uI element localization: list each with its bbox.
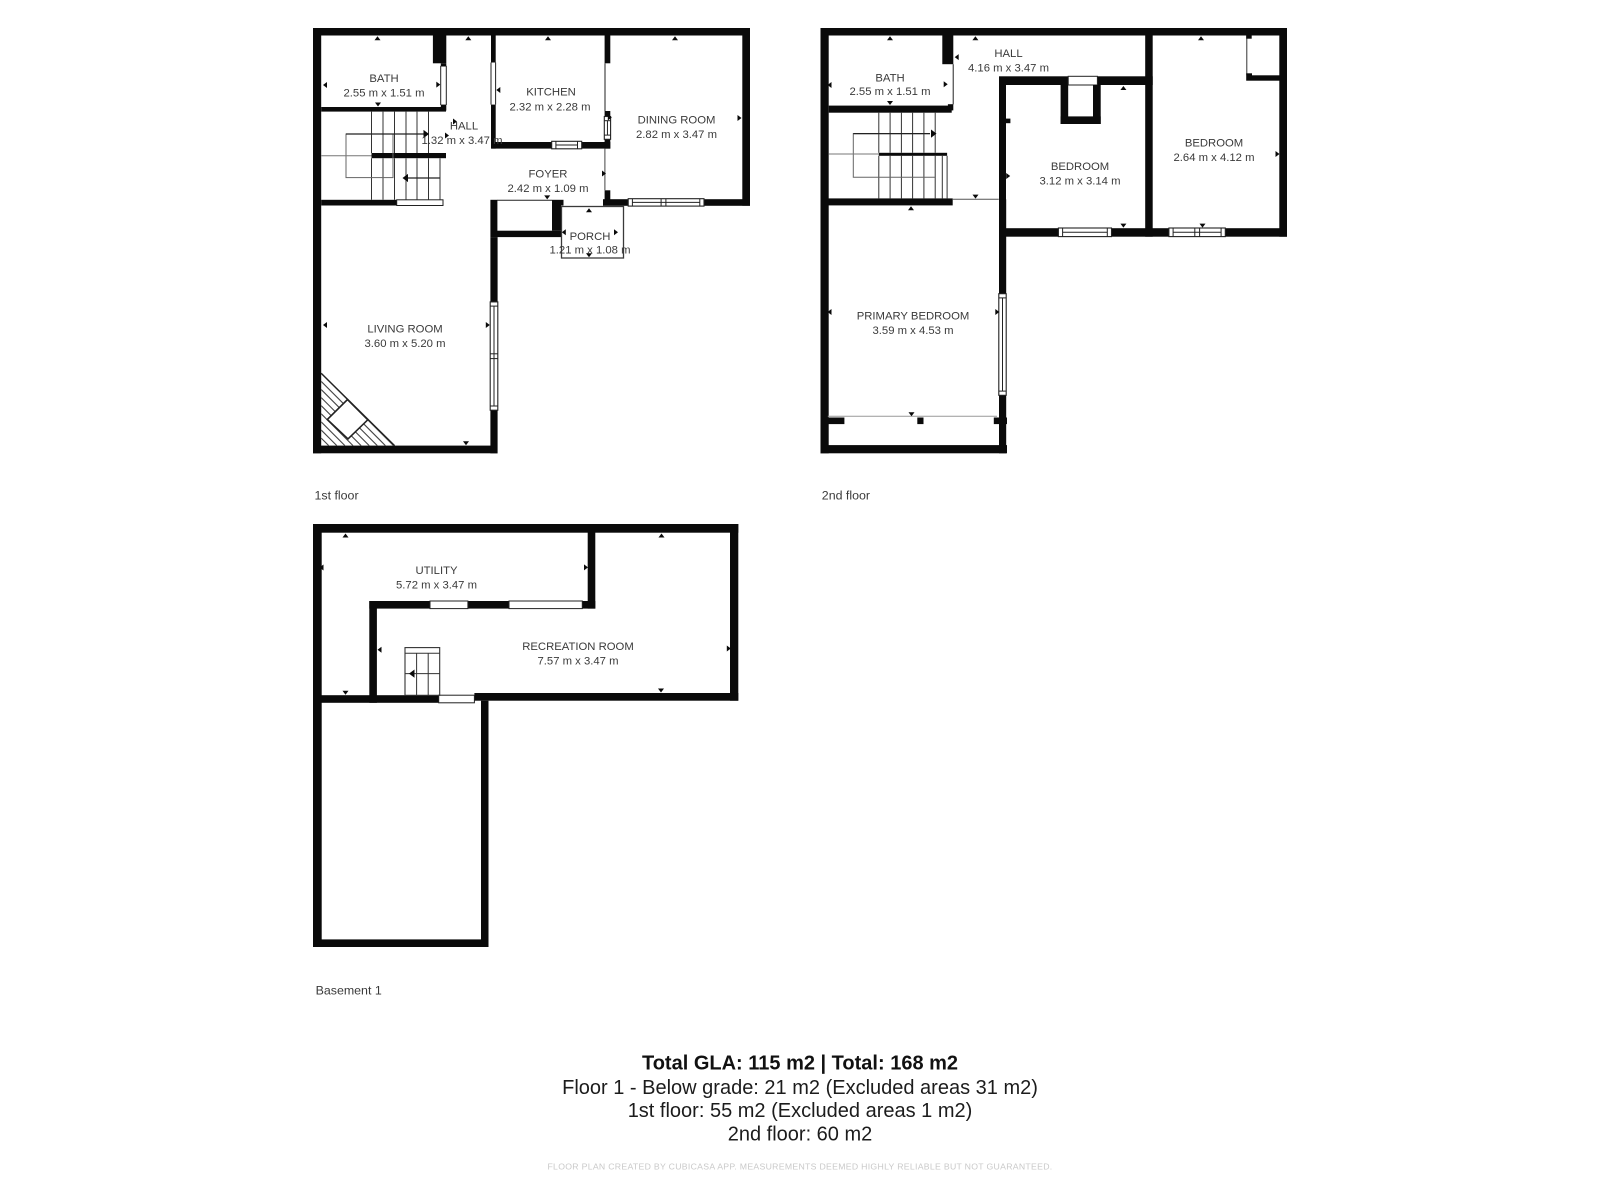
svg-text:2.64 m x 4.12 m: 2.64 m x 4.12 m bbox=[1174, 152, 1255, 164]
svg-text:HALL: HALL bbox=[994, 48, 1022, 60]
svg-text:FLOOR PLAN CREATED BY CUBICASA: FLOOR PLAN CREATED BY CUBICASA APP. MEAS… bbox=[547, 1162, 1052, 1172]
svg-text:1st floor: 55 m2 (Excluded are: 1st floor: 55 m2 (Excluded areas 1 m2) bbox=[628, 1100, 973, 1122]
svg-text:2.55 m x 1.51 m: 2.55 m x 1.51 m bbox=[344, 88, 425, 100]
svg-text:DINING ROOM: DINING ROOM bbox=[638, 115, 716, 127]
svg-text:Floor 1 - Below grade: 21 m2 (: Floor 1 - Below grade: 21 m2 (Excluded a… bbox=[562, 1077, 1038, 1099]
svg-text:Basement 1: Basement 1 bbox=[316, 984, 382, 998]
svg-text:1st floor: 1st floor bbox=[315, 489, 359, 503]
svg-text:7.57 m x 3.47 m: 7.57 m x 3.47 m bbox=[538, 656, 619, 668]
svg-text:3.12 m x 3.14 m: 3.12 m x 3.14 m bbox=[1040, 176, 1121, 188]
svg-text:PORCH: PORCH bbox=[570, 231, 611, 243]
svg-text:1.32 m x 3.47 m: 1.32 m x 3.47 m bbox=[422, 135, 503, 147]
svg-text:PRIMARY BEDROOM: PRIMARY BEDROOM bbox=[857, 311, 970, 323]
svg-text:KITCHEN: KITCHEN bbox=[526, 87, 576, 99]
svg-text:LIVING ROOM: LIVING ROOM bbox=[367, 324, 442, 336]
svg-text:3.59 m x 4.53 m: 3.59 m x 4.53 m bbox=[873, 325, 954, 337]
svg-text:BEDROOM: BEDROOM bbox=[1051, 161, 1109, 173]
svg-text:2nd floor: 2nd floor bbox=[822, 489, 870, 503]
svg-text:UTILITY: UTILITY bbox=[415, 565, 458, 577]
svg-text:2.32 m x 2.28 m: 2.32 m x 2.28 m bbox=[510, 102, 591, 114]
svg-text:2.42 m x 1.09 m: 2.42 m x 1.09 m bbox=[508, 183, 589, 195]
svg-text:BATH: BATH bbox=[369, 73, 398, 85]
svg-text:Total GLA: 115 m2 | Total: 168: Total GLA: 115 m2 | Total: 168 m2 bbox=[642, 1053, 958, 1075]
svg-text:3.60 m x 5.20 m: 3.60 m x 5.20 m bbox=[365, 338, 446, 350]
svg-text:2.82 m x 3.47 m: 2.82 m x 3.47 m bbox=[636, 129, 717, 141]
svg-text:HALL: HALL bbox=[450, 121, 478, 133]
svg-text:BATH: BATH bbox=[875, 73, 904, 85]
svg-text:2.55 m x 1.51 m: 2.55 m x 1.51 m bbox=[850, 86, 931, 98]
svg-text:FOYER: FOYER bbox=[529, 169, 568, 181]
svg-text:1.21 m x 1.08 m: 1.21 m x 1.08 m bbox=[550, 245, 631, 257]
svg-text:2nd floor: 60 m2: 2nd floor: 60 m2 bbox=[728, 1123, 873, 1145]
svg-text:5.72 m x 3.47 m: 5.72 m x 3.47 m bbox=[396, 580, 477, 592]
svg-text:RECREATION ROOM: RECREATION ROOM bbox=[522, 641, 634, 653]
svg-text:BEDROOM: BEDROOM bbox=[1185, 138, 1243, 150]
svg-text:4.16 m x 3.47 m: 4.16 m x 3.47 m bbox=[968, 63, 1049, 75]
